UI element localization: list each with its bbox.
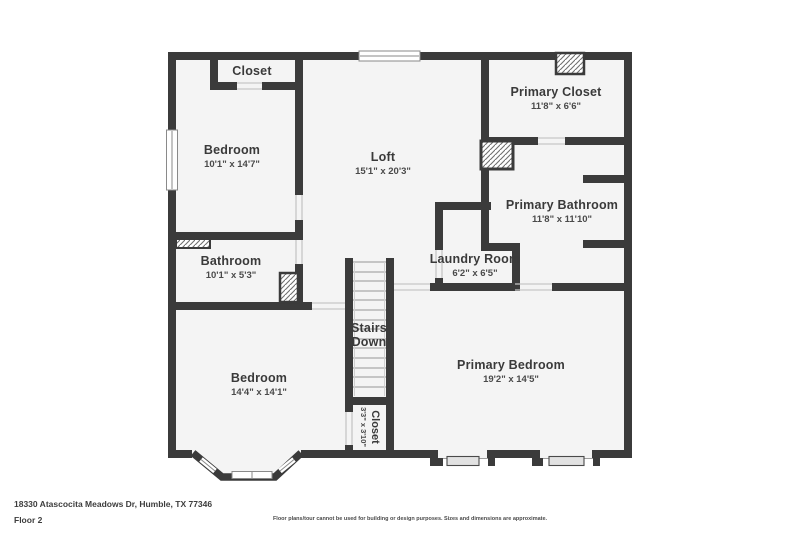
label-closet-under-stairs: Closet — [369, 410, 381, 444]
chase-loft-bathroom — [481, 141, 513, 169]
label-stairs: Stairs — [351, 321, 387, 335]
dims-loft: 15'1" x 20'3" — [355, 166, 411, 177]
label-closet-top: Closet — [232, 64, 272, 78]
window-primary-bedroom-1 — [447, 457, 479, 466]
chase-bathroom-corner — [280, 273, 298, 302]
dims-bedroom-bottom: 14'4" x 14'1" — [231, 387, 287, 398]
chase-primary-closet — [556, 53, 584, 74]
window-primary-bedroom-2 — [549, 457, 584, 466]
disclaimer-text: Floor plans/tour cannot be used for buil… — [20, 516, 800, 522]
dims-primary-bathroom: 11'8" x 11'10" — [532, 214, 592, 225]
label-loft: Loft — [371, 150, 396, 164]
niche-bathroom-shelf — [176, 239, 210, 248]
label-primary-bedroom: Primary Bedroom — [457, 358, 565, 372]
dims-primary-closet: 11'8" x 6'6" — [531, 101, 581, 112]
label-bedroom-bottom: Bedroom — [231, 371, 287, 385]
address-text: 18330 Atascocita Meadows Dr, Humble, TX … — [14, 499, 212, 509]
dims-bathroom: 10'1" x 5'3" — [206, 270, 257, 281]
floor-plan-page: Closet Bedroom 10'1" x 14'7" Loft 15'1" … — [0, 0, 800, 533]
dims-closet-under-stairs: 3'3" x 3'10" — [359, 407, 368, 447]
label-stairs-down: (Down) — [347, 335, 391, 349]
label-laundry-room: Laundry Room — [430, 252, 521, 266]
label-bedroom-top: Bedroom — [204, 143, 260, 157]
dims-primary-bedroom: 19'2" x 14'5" — [483, 374, 539, 385]
dims-bedroom-top: 10'1" x 14'7" — [204, 159, 260, 170]
label-primary-closet: Primary Closet — [510, 85, 602, 99]
dims-laundry-room: 6'2" x 6'5" — [452, 268, 497, 279]
label-primary-bathroom: Primary Bathroom — [506, 198, 618, 212]
label-bathroom: Bathroom — [201, 254, 262, 268]
floor-plan-drawing: Closet Bedroom 10'1" x 14'7" Loft 15'1" … — [0, 0, 800, 533]
